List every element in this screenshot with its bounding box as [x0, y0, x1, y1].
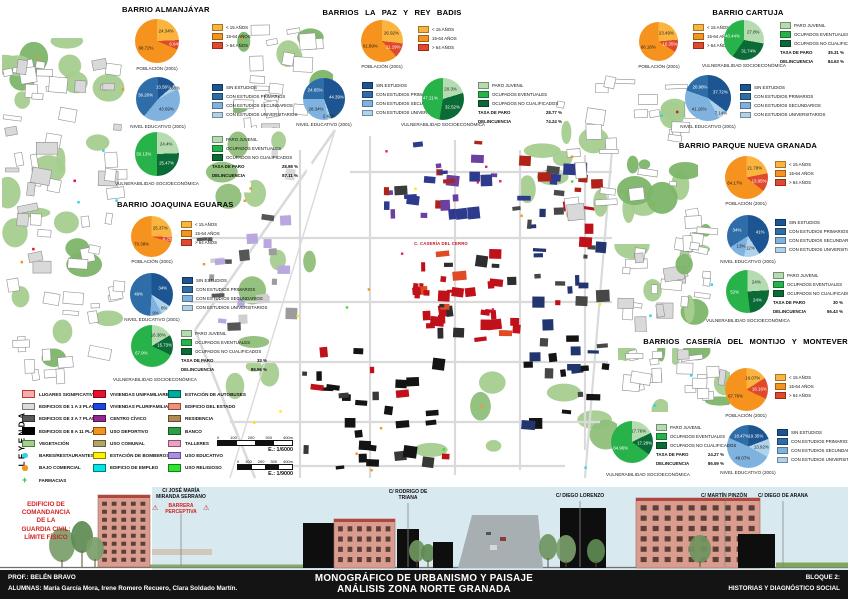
chart-legend-label: CON ESTUDIOS UNIVERSITARIOS: [196, 305, 267, 310]
chart-caption: NIVEL EDUCATIVO (2001): [680, 124, 735, 129]
chart-stat-row: DELINCUENCIA86.56 %: [181, 367, 267, 372]
chart-legend-row: PARO JUVENIL: [478, 82, 562, 89]
barrio-title-lapaz: BARRIOS LA PAZ Y REY BADIS: [322, 8, 461, 17]
chart-legend-label: CON ESTUDIOS PRIMARIOS: [196, 287, 255, 292]
chart-legend-row: > 64 AÑOS: [775, 179, 814, 186]
pie-slice-label: 12%: [746, 246, 755, 251]
pie-slice-label: 49.07%: [735, 456, 750, 461]
pie-chart: 25.37%4.25%70.38%: [131, 216, 172, 257]
pie-slice-label: 21.78%: [747, 165, 762, 170]
chart-stat-row: TASA DE PARO24.27 %: [656, 452, 724, 457]
pie-slice-label: 67.9%: [135, 350, 147, 355]
chart-legend-swatch: [212, 42, 223, 49]
pie-chart: 24%24%52%: [726, 270, 769, 313]
chart-stat-label: DELINCUENCIA: [773, 309, 806, 314]
pie-chart: 13.58%3.88%43.69%39.26%: [136, 77, 180, 121]
chart-legend-label: CON ESTUDIOS UNIVERSITARIOS: [791, 457, 848, 462]
warning-triangle-icon: ⚠: [203, 504, 209, 512]
chart-legend-row: OCUPADOS EVENTUALES: [656, 433, 736, 440]
chart-caption: POBLACIÓN (2001): [725, 413, 766, 418]
pie-slice-label: 44.39%: [329, 94, 344, 99]
pie-slice-label: 47.21%: [423, 95, 438, 100]
chart-stat-value: 28.98 %: [282, 164, 298, 169]
chart-legend-row: OCUPADOS NO CUALIFICADOS: [212, 154, 298, 161]
chart-stat-row: TASA DE PARO28.77 %: [478, 110, 562, 115]
chart-caption: POBLACIÓN (2001): [725, 201, 766, 206]
chart-legend-label: > 64 AÑOS: [226, 43, 248, 48]
footer-bar: PROF.: BELÉN BRAVO ALUMNAS: María García…: [0, 570, 848, 599]
legend-rect-icon: [93, 403, 106, 411]
chart-legend-row: PARO JUVENIL: [212, 136, 298, 143]
chart-legend-row: > 64 AÑOS: [212, 42, 251, 49]
chart-stat-label: TASA DE PARO: [212, 164, 244, 169]
pie-slice-label: 32.52%: [445, 105, 460, 110]
chart-legend-swatch: [775, 374, 786, 381]
pie-slice-label: 11.19%: [386, 44, 401, 49]
barrio-title-joaquina: BARRIO JOAQUINA EGUARAS: [117, 200, 234, 209]
chart-legend-label: OCUPADOS NO CUALIFICADOS: [195, 349, 261, 354]
legend-item-label: USO RELIGIOSO: [185, 465, 222, 470]
chart-legend-swatch: [775, 161, 786, 168]
legend-rect-icon: [93, 464, 106, 472]
chart-legend-row: PARO JUVENIL: [181, 330, 267, 337]
pie-slice-label: 7.14%: [715, 110, 727, 115]
chart-legend-row: SIN ESTUDIOS: [212, 84, 297, 91]
chart-stat-label: TASA DE PARO: [478, 110, 510, 115]
legend-symbol: [93, 452, 106, 460]
legend-symbol: [168, 415, 181, 423]
chart-stat-value: 84.63 %: [828, 59, 844, 64]
legend-symbol: [22, 415, 35, 423]
pie-chart: 44.39%2.42%28.34%24.85%: [303, 78, 345, 120]
chart-legend-label: OCUPADOS NO CUALIFICADOS: [787, 291, 848, 296]
chart-legend-label: CON ESTUDIOS UNIVERSITARIOS: [789, 247, 848, 252]
chart-legend-swatch: [777, 429, 788, 436]
chart-stat-value: 87.11 %: [282, 173, 298, 178]
footer-block-line2: HISTORIAS Y DIAGNÓSTICO SOCIAL: [728, 585, 840, 592]
legend-rect-icon: [22, 403, 35, 411]
map-fragment-almanjayar: [2, 38, 128, 386]
chart-legend-swatch: [740, 93, 751, 100]
pie-slice-label: 20.98%: [693, 84, 708, 89]
legend-symbol: [22, 427, 35, 435]
legend-rect-icon: [168, 464, 181, 472]
map-fragment-montijo: [618, 348, 668, 412]
chart-stat-label: DELINCUENCIA: [181, 367, 214, 372]
pie-slice-label: 34%: [158, 286, 167, 291]
chart-legend-label: OCUPADOS EVENTUALES: [195, 340, 250, 345]
chart-legend-row: 15-64 AÑOS: [181, 230, 220, 237]
legend-item: +FARMACIAS: [22, 474, 106, 486]
chart-legend-row: CON ESTUDIOS SECUNDARIOS: [182, 295, 267, 302]
chart-stat-row: DELINCUENCIA86.59 %: [656, 461, 724, 466]
chart-legend: PARO JUVENILOCUPADOS EVENTUALESOCUPADOS …: [773, 272, 848, 314]
footer-title-line1: MONOGRÁFICO DE URBANISMO Y PAISAJE: [315, 573, 533, 584]
legend-item-label: EDIFICIO DE EMPLEO: [110, 465, 158, 470]
chart-legend-label: > 64 AÑOS: [789, 393, 811, 398]
chart-caption: VULNERABILIDAD SOCIOECONÓMICA: [113, 377, 197, 382]
legend-symbol: [22, 403, 35, 411]
chart-legend-row: > 64 AÑOS: [775, 392, 814, 399]
pie-slice-label: 66.16%: [641, 45, 656, 50]
legend-rect-icon: [22, 427, 35, 435]
chart-legend-label: CON ESTUDIOS SECUNDARIOS: [789, 238, 848, 243]
pie-slice-label: 13.92%: [754, 445, 769, 450]
chart-stat-row: TASA DE PARO33 %: [181, 358, 267, 363]
chart-legend-label: OCUPADOS EVENTUALES: [787, 282, 842, 287]
chart-legend-label: 15-64 AÑOS: [789, 171, 814, 176]
chart-legend-row: OCUPADOS NO CUALIFICADOS: [780, 40, 848, 47]
chart-legend-swatch: [362, 91, 373, 98]
chart-stat-value: 56.43 %: [827, 309, 843, 314]
chart-stat-row: TASA DE PARO28.98 %: [212, 164, 298, 169]
pie-chart: 20.3%32.52%47.21%: [422, 78, 464, 120]
legend-item-label: BAJO COMERCIAL: [39, 465, 81, 470]
street-label-diego-lorenzo: C/ DIEGO LORENZO: [556, 493, 604, 499]
chart-legend-label: CON ESTUDIOS SECUNDARIOS: [791, 448, 848, 453]
street-label-jose-maria: C/ JOSÉ MARÍA MIRANDA SERRANO: [156, 488, 206, 500]
footer-prof: PROF.: BELÉN BRAVO: [8, 574, 76, 581]
pie-chart: 23.49%10.35%66.16%: [639, 22, 678, 61]
scale-bar-9000: 0100200300400mE.: 1/9000: [237, 459, 293, 477]
pie-slice-label: 4.25%: [163, 237, 175, 242]
chart-legend-swatch: [182, 277, 193, 284]
street-label-rodrigo: C/ RODRIGO DE TRIANA: [389, 489, 428, 501]
footer-block-line1: BLOQUE 2:: [806, 574, 840, 581]
pie-slice-label: 16.16%: [752, 386, 767, 391]
chart-legend-row: CON ESTUDIOS PRIMARIOS: [777, 438, 848, 445]
chart-legend-row: OCUPADOS NO CUALIFICADOS: [656, 442, 736, 449]
chart-legend-row: SIN ESTUDIOS: [775, 219, 848, 226]
legend-item-label: ESTACIÓN DE BOMBEROS: [110, 453, 169, 458]
chart-stat-value: 28.77 %: [546, 110, 562, 115]
chart-legend-row: 15-64 AÑOS: [775, 383, 814, 390]
chart-stat-value: 35.31 %: [828, 50, 844, 55]
legend-symbol: [93, 464, 106, 472]
chart-legend-row: CON ESTUDIOS PRIMARIOS: [775, 228, 848, 235]
chart-legend: < 15 AÑOS15-64 AÑOS> 64 AÑOS: [775, 161, 814, 189]
chart-legend-label: SIN ESTUDIOS: [226, 85, 257, 90]
pie-slice-label: 37.72%: [713, 89, 728, 94]
chart-stat-label: DELINCUENCIA: [656, 461, 689, 466]
scale-segment: [274, 441, 293, 445]
legend-item-label: VEGETACIÓN: [39, 441, 69, 446]
legend-rect-icon: [168, 390, 181, 398]
chart-legend-swatch: [181, 221, 192, 228]
pie-slice-label: 28.34%: [309, 106, 324, 111]
legend-symbol: [93, 390, 106, 398]
chart-caption: POBLACIÓN (2001): [136, 66, 177, 71]
chart-legend-swatch: [656, 433, 667, 440]
chart-caption: NIVEL EDUCATIVO (2001): [720, 470, 775, 475]
legend-item: ESTACIÓN DE AUTOBUSES: [168, 388, 246, 400]
legend-item-label: BANCO: [185, 429, 202, 434]
legend-item-label: ESTACIÓN DE AUTOBUSES: [185, 392, 246, 397]
legend-rect-icon: [168, 427, 181, 435]
legend-item: CENTRO CÍVICO: [93, 413, 178, 425]
pie-chart: 21.78%13.95%64.17%: [725, 156, 768, 199]
chart-legend: < 15 AÑOS15-64 AÑOS> 64 AÑOS: [775, 374, 814, 402]
legend-symbol: [168, 452, 181, 460]
chart-stat-value: 30 %: [833, 300, 843, 305]
chart-legend-row: OCUPADOS EVENTUALES: [181, 339, 267, 346]
chart-legend-swatch: [773, 281, 784, 288]
scale-segment: [218, 441, 237, 445]
chart-legend-row: > 64 AÑOS: [181, 239, 220, 246]
chart-legend: PARO JUVENILOCUPADOS EVENTUALESOCUPADOS …: [181, 330, 267, 372]
chart-legend-swatch: [181, 348, 192, 355]
scale-bar-6000: 0100200300400mE.: 1/6000: [217, 435, 293, 453]
pie-slice-label: 9%: [152, 310, 158, 315]
pie-chart: 34%8%9%49%: [130, 273, 173, 316]
legend-rect-icon: [93, 452, 106, 460]
chart-legend-label: CON ESTUDIOS SECUNDARIOS: [226, 103, 293, 108]
legend-item: EDIFICIO DEL ESTADO: [168, 400, 246, 412]
comandancia-label: EDIFICIO DE COMANDANCIA DE LA GUARDIA CI…: [21, 501, 70, 542]
pie-slice-label: 39.26%: [138, 92, 153, 97]
chart-legend-swatch: [740, 84, 751, 91]
chart-legend-label: SIN ESTUDIOS: [196, 278, 227, 283]
chart-legend-row: SIN ESTUDIOS: [777, 429, 848, 436]
chart-legend-row: CON ESTUDIOS SECUNDARIOS: [212, 102, 297, 109]
chart-caption: NIVEL EDUCATIVO (2001): [296, 122, 351, 127]
chart-legend-label: CON ESTUDIOS UNIVERSITARIOS: [226, 112, 297, 117]
legend-symbol: [22, 390, 35, 398]
pie-slice-label: 20.3%: [444, 86, 456, 91]
legend-circle-icon: [22, 453, 28, 459]
chart-legend-label: CON ESTUDIOS UNIVERSITARIOS: [754, 112, 825, 117]
pie-slice-label: 17.28%: [637, 441, 652, 446]
chart-legend-swatch: [212, 136, 223, 143]
legend-item-label: EDIFICIO DEL ESTADO: [185, 404, 235, 409]
pie-slice-label: 6.94%: [169, 42, 181, 47]
scale-bar: [237, 464, 293, 470]
chart-legend-label: < 15 AÑOS: [195, 222, 217, 227]
chart-legend-swatch: [182, 295, 193, 302]
chart-legend-swatch: [693, 24, 704, 31]
chart-legend-swatch: [362, 110, 373, 117]
scale-segment: [252, 465, 266, 469]
chart-legend-label: OCUPADOS EVENTUALES: [794, 32, 848, 37]
legend-item: USO DEPORTIVO: [93, 425, 178, 437]
chart-legend-row: OCUPADOS NO CUALIFICADOS: [478, 100, 562, 107]
chart-legend-swatch: [181, 230, 192, 237]
legend-rect-icon: [22, 415, 35, 423]
pie-slice-label: 8%: [161, 305, 167, 310]
pie-slice-label: 41%: [756, 230, 765, 235]
warning-triangle-icon: ⚠: [152, 504, 158, 512]
pie-slice-label: 34%: [733, 227, 742, 232]
chart-legend-label: 15-64 AÑOS: [789, 384, 814, 389]
chart-legend-label: > 64 AÑOS: [432, 45, 454, 50]
chart-legend-swatch: [740, 102, 751, 109]
pie-slice-label: 19.35%: [748, 433, 763, 438]
chart-legend-label: > 64 AÑOS: [195, 240, 217, 245]
legend-rect-icon: [168, 403, 181, 411]
chart-caption: POBLACIÓN (2001): [361, 64, 402, 69]
legend-item-label: CENTRO CÍVICO: [110, 416, 147, 421]
chart-caption: NIVEL EDUCATIVO (2001): [130, 124, 185, 129]
legend-symbol: [93, 440, 106, 448]
chart-legend-label: SIN ESTUDIOS: [754, 85, 785, 90]
legend-item-label: USO DEPORTIVO: [110, 429, 148, 434]
chart-legend-label: SIN ESTUDIOS: [376, 83, 407, 88]
chart-legend-row: CON ESTUDIOS UNIVERSITARIOS: [740, 112, 825, 119]
legend-symbol: [22, 465, 35, 471]
chart-legend-swatch: [656, 442, 667, 449]
legend-item-label: USO COMUNAL: [110, 441, 145, 446]
legend-symbol: [93, 415, 106, 423]
chart-legend-label: PARO JUVENIL: [787, 273, 818, 278]
pie-slice-label: 49%: [134, 292, 143, 297]
chart-legend-swatch: [362, 82, 373, 89]
pie-slice-label: 16.38%: [151, 333, 166, 338]
chart-stat-value: 86.59 %: [708, 461, 724, 466]
chart-stat-value: 74.24 %: [546, 119, 562, 124]
legend-symbol: [168, 440, 181, 448]
pie-slice-label: 27.8%: [747, 30, 759, 35]
pie-slice-label: 31.74%: [741, 49, 756, 54]
legend-item: VIVIENDAS PLURIFAMILIARES: [93, 400, 178, 412]
legend-symbol: [168, 427, 181, 435]
pie-slice-label: 67.76%: [728, 394, 743, 399]
legend-rect-icon: [93, 390, 106, 398]
chart-legend-label: SIN ESTUDIOS: [791, 430, 822, 435]
scale-segment: [255, 441, 274, 445]
chart-legend-swatch: [212, 33, 223, 40]
legend-symbol: [22, 453, 35, 459]
chart-legend-label: CON ESTUDIOS PRIMARIOS: [754, 94, 813, 99]
chart-legend-label: OCUPADOS NO CUALIFICADOS: [794, 41, 848, 46]
map-fragment-monteverde: [672, 348, 730, 408]
chart-caption: VULNERABILIDAD SOCIOECONÓMICA: [702, 63, 786, 68]
chart-legend-swatch: [775, 383, 786, 390]
chart-stat-row: DELINCUENCIA84.63 %: [780, 59, 844, 64]
chart-legend-label: CON ESTUDIOS SECUNDARIOS: [196, 296, 263, 301]
chart-legend-label: SIN ESTUDIOS: [789, 220, 820, 225]
map-street-label: C. CASERÍA DEL CERRO: [414, 241, 468, 246]
pie-slice-label: 43.69%: [159, 107, 174, 112]
legend-symbol: [93, 403, 106, 411]
footer-title-line2: ANÁLISIS ZONA NORTE GRANADA: [337, 584, 511, 595]
chart-legend-row: CON ESTUDIOS UNIVERSITARIOS: [777, 457, 848, 464]
chart-legend-label: 15-64 AÑOS: [195, 231, 220, 236]
chart-legend-label: OCUPADOS EVENTUALES: [670, 434, 725, 439]
chart-legend-swatch: [212, 93, 223, 100]
chart-legend-swatch: [212, 102, 223, 109]
chart-legend: < 15 AÑOS15-64 AÑOS> 64 AÑOS: [181, 221, 220, 249]
scale-label: E.: 1/6000: [217, 447, 293, 453]
chart-legend: SIN ESTUDIOSCON ESTUDIOS PRIMARIOSCON ES…: [777, 429, 848, 466]
chart-stat-row: TASA DE PARO35.31 %: [780, 50, 844, 55]
legend-rect-icon: [22, 390, 35, 398]
legend-symbol: +: [22, 478, 35, 483]
chart-legend: PARO JUVENILOCUPADOS EVENTUALESOCUPADOS …: [478, 82, 562, 124]
chart-legend-swatch: [418, 26, 429, 33]
chart-stat-value: 86.56 %: [251, 367, 267, 372]
chart-legend-label: 15-64 AÑOS: [226, 34, 251, 39]
chart-legend-swatch: [181, 339, 192, 346]
chart-legend-swatch: [181, 330, 192, 337]
chart-legend-row: OCUPADOS NO CUALIFICADOS: [181, 348, 267, 355]
legend-column-2: VIVIENDAS UNIFAMILIARESVIVIENDAS PLURIFA…: [93, 388, 178, 474]
chart-legend-label: OCUPADOS NO CUALIFICADOS: [226, 155, 292, 160]
chart-legend-label: < 15 AÑOS: [789, 162, 811, 167]
legend-symbol: [168, 403, 181, 411]
chart-legend-label: CON ESTUDIOS SECUNDARIOS: [754, 103, 821, 108]
pie-slice-label: 24%: [752, 280, 761, 285]
street-label-diego-arana: C/ DIEGO DE ARANA: [758, 493, 808, 499]
chart-stat-label: TASA DE PARO: [656, 452, 688, 457]
chart-legend-row: < 15 AÑOS: [775, 161, 814, 168]
chart-legend-row: < 15 AÑOS: [775, 374, 814, 381]
legend-item: EDIFICIO DE EMPLEO: [93, 462, 178, 474]
chart-legend-label: CON ESTUDIOS PRIMARIOS: [226, 94, 285, 99]
chart-caption: VULNERABILIDAD SOCIOECONÓMICA: [706, 318, 790, 323]
chart-legend-swatch: [362, 100, 373, 107]
legend-item-label: LUGARES SIGNIFICATIVOS: [39, 392, 99, 397]
chart-caption: VULNERABILIDAD SOCIOECONÓMICA: [401, 122, 485, 127]
legend-symbol: [168, 464, 181, 472]
elevation-strip: EDIFICIO DE COMANDANCIA DE LA GUARDIA CI…: [0, 487, 848, 570]
pie-slice-label: 24%: [753, 297, 762, 302]
chart-legend: < 15 AÑOS15-64 AÑOS> 64 AÑOS: [418, 26, 457, 54]
pie-slice-label: 52%: [730, 290, 739, 295]
chart-legend-swatch: [212, 112, 223, 119]
barrio-title-monteverde: BARRIOS CASERÍA DEL MONTIJO Y MONTEVERDE: [643, 337, 848, 346]
chart-legend-label: CON ESTUDIOS PRIMARIOS: [789, 229, 848, 234]
chart-stat-row: DELINCUENCIA87.11 %: [212, 173, 298, 178]
legend-symbol: [93, 427, 106, 435]
chart-legend-label: PARO JUVENIL: [226, 137, 257, 142]
pie-slice-label: 23.49%: [659, 30, 674, 35]
barrera-perceptiva-label: BARRERA PERCEPTIVA: [165, 503, 197, 515]
pie-chart: 16.07%16.16%67.76%: [725, 368, 768, 411]
chart-legend-label: PARO JUVENIL: [794, 23, 825, 28]
pie-chart: 26.92%11.19%61.89%: [361, 20, 403, 62]
chart-legend-swatch: [775, 179, 786, 186]
pie-chart: 37.72%7.14%41.16%20.98%: [685, 75, 731, 121]
chart-legend-label: CON ESTUDIOS PRIMARIOS: [791, 439, 848, 444]
pie-slice-label: 70.38%: [134, 241, 149, 246]
chart-legend-row: CON ESTUDIOS SECUNDARIOS: [775, 237, 848, 244]
chart-stat-row: DELINCUENCIA56.43 %: [773, 309, 843, 314]
chart-stat-row: TASA DE PARO30 %: [773, 300, 843, 305]
chart-legend-swatch: [775, 237, 786, 244]
scale-label: E.: 1/9000: [237, 471, 293, 477]
legend-cross-icon: +: [22, 478, 27, 483]
chart-stat-label: DELINCUENCIA: [780, 59, 813, 64]
scale-segment: [279, 465, 293, 469]
legend-rect-icon: [93, 427, 106, 435]
pie-chart: 16.38%15.73%67.9%: [131, 325, 173, 367]
pie-slice-label: 24.34%: [159, 29, 174, 34]
pie-slice-label: 41.16%: [692, 106, 707, 111]
chart-legend-swatch: [780, 22, 791, 29]
chart-legend-row: OCUPADOS NO CUALIFICADOS: [773, 290, 848, 297]
chart-legend-label: 15-64 AÑOS: [432, 36, 457, 41]
pie-slice-label: 40.44%: [725, 34, 740, 39]
chart-legend-row: OCUPADOS EVENTUALES: [478, 91, 562, 98]
chart-caption: NIVEL EDUCATIVO (2001): [124, 317, 179, 322]
chart-legend-row: CON ESTUDIOS UNIVERSITARIOS: [182, 305, 267, 312]
chart-caption: VULNERABILIDAD SOCIOECONÓMICA: [115, 181, 199, 186]
barrio-title-cartuja: BARRIO CARTUJA: [712, 8, 783, 17]
pie-chart: 41%12%13%34%: [727, 215, 769, 257]
scale-segment: [237, 441, 256, 445]
chart-legend-row: CON ESTUDIOS UNIVERSITARIOS: [775, 247, 848, 254]
chart-legend-row: CON ESTUDIOS SECUNDARIOS: [740, 102, 825, 109]
